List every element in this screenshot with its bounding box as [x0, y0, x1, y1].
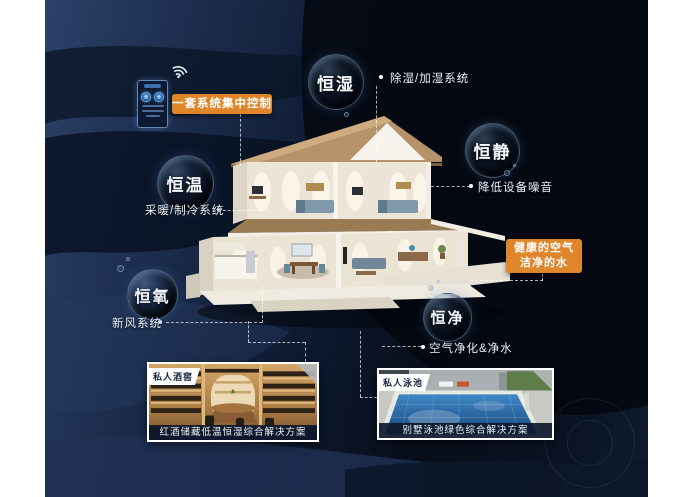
mini-bubble [504, 170, 510, 176]
bubble-constant-humidity: 恒湿 [308, 54, 364, 110]
connector-dot [469, 184, 473, 188]
mini-bubble [437, 280, 440, 283]
callout-line1: 健康的空气 [506, 241, 582, 256]
bubble-label: 恒净 [430, 307, 464, 328]
infographic-canvas: 一套系统集中控制 健康的空气 洁净的水 恒湿 恒静 恒温 恒氧 恒净 除湿/加湿… [0, 0, 700, 497]
photo-caption: 红酒储藏低温恒湿综合解决方案 [149, 425, 317, 440]
photo-caption: 别墅泳池绿色综合解决方案 [379, 423, 552, 438]
central-control-callout: 一套系统集中控制 [172, 94, 272, 114]
callout-line2: 洁净的水 [506, 256, 582, 271]
phone-dials [141, 92, 164, 102]
phone-row [146, 115, 160, 117]
mini-bubble [513, 164, 516, 167]
phone-row [142, 105, 164, 107]
bubble-label: 恒氧 [134, 283, 170, 307]
connector-line [223, 210, 269, 211]
bubble-label: 恒湿 [317, 70, 355, 95]
bubble-label: 恒温 [167, 171, 205, 196]
bubble-constant-oxygen: 恒氧 [127, 269, 178, 320]
note-dehumidify-system: 除湿/加湿系统 [390, 70, 469, 86]
control-panel-phone [137, 80, 168, 128]
photo-tag: 私人泳池 [379, 374, 430, 391]
wifi-icon [169, 61, 189, 79]
connector-line [248, 342, 305, 343]
pool-photo: 私人泳池 别墅泳池绿色综合解决方案 [377, 368, 554, 440]
connector-line [240, 114, 241, 166]
connector-dot [379, 75, 383, 79]
bubble-constant-quiet: 恒静 [465, 123, 520, 178]
phone-title-bar [144, 84, 161, 88]
mini-bubble [344, 112, 349, 117]
dial-icon [154, 92, 164, 102]
wine-cellar-photo: 私人酒窖 红酒储藏低温恒湿综合解决方案 [147, 362, 319, 442]
connector-line [360, 397, 377, 398]
connector-line [376, 86, 377, 162]
connector-line [431, 186, 470, 187]
photo-tag: 私人酒窖 [149, 368, 200, 385]
connector-line [305, 342, 306, 362]
connector-line [262, 286, 263, 323]
note-fresh-air-system: 新风系统 [112, 315, 162, 331]
connector-line [248, 321, 249, 342]
mini-bubble [428, 285, 434, 291]
connector-dot [421, 345, 425, 349]
healthy-air-water-callout: 健康的空气 洁净的水 [506, 239, 582, 273]
connector-line [470, 280, 543, 281]
connector-line [360, 331, 361, 397]
swirl-decoration [567, 420, 613, 466]
bubble-label: 恒静 [474, 138, 512, 163]
bubble-constant-purity: 恒净 [423, 293, 472, 342]
phone-row [142, 110, 164, 112]
connector-line [382, 346, 421, 347]
note-air-water-purification: 空气净化&净水 [429, 340, 513, 356]
mini-bubble [126, 257, 130, 261]
note-reduce-noise: 降低设备噪音 [478, 179, 553, 195]
mini-bubble [117, 265, 124, 272]
dial-icon [141, 92, 151, 102]
note-heating-cooling-system: 采暖/制冷系统 [145, 202, 224, 218]
